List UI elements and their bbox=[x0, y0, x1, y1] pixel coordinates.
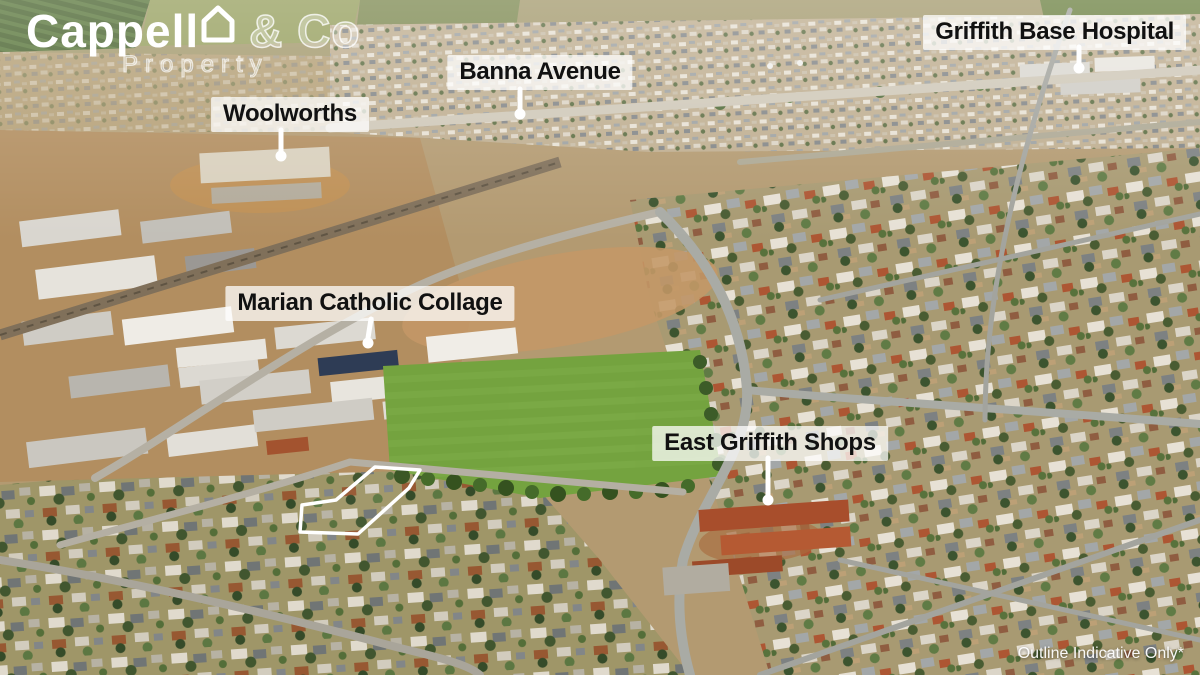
label-woolworths: Woolworths bbox=[211, 97, 369, 132]
aerial-map-image: Cappell & Co Property Banna Avenue Woolw… bbox=[0, 0, 1200, 675]
house-icon bbox=[200, 4, 236, 52]
brand-name-bold: Cappell bbox=[26, 7, 199, 55]
label-marian-catholic-college: Marian Catholic Collage bbox=[225, 286, 514, 321]
label-east-griffith-shops: East Griffith Shops bbox=[652, 426, 888, 461]
aerial-photo bbox=[0, 0, 1200, 675]
label-banna-avenue: Banna Avenue bbox=[447, 55, 632, 90]
disclaimer-text: Outline Indicative Only* bbox=[1018, 645, 1184, 663]
brand-logo: Cappell & Co Property bbox=[26, 4, 360, 79]
label-griffith-base-hospital: Griffith Base Hospital bbox=[923, 15, 1186, 50]
brand-name-outline: & Co bbox=[249, 7, 360, 55]
